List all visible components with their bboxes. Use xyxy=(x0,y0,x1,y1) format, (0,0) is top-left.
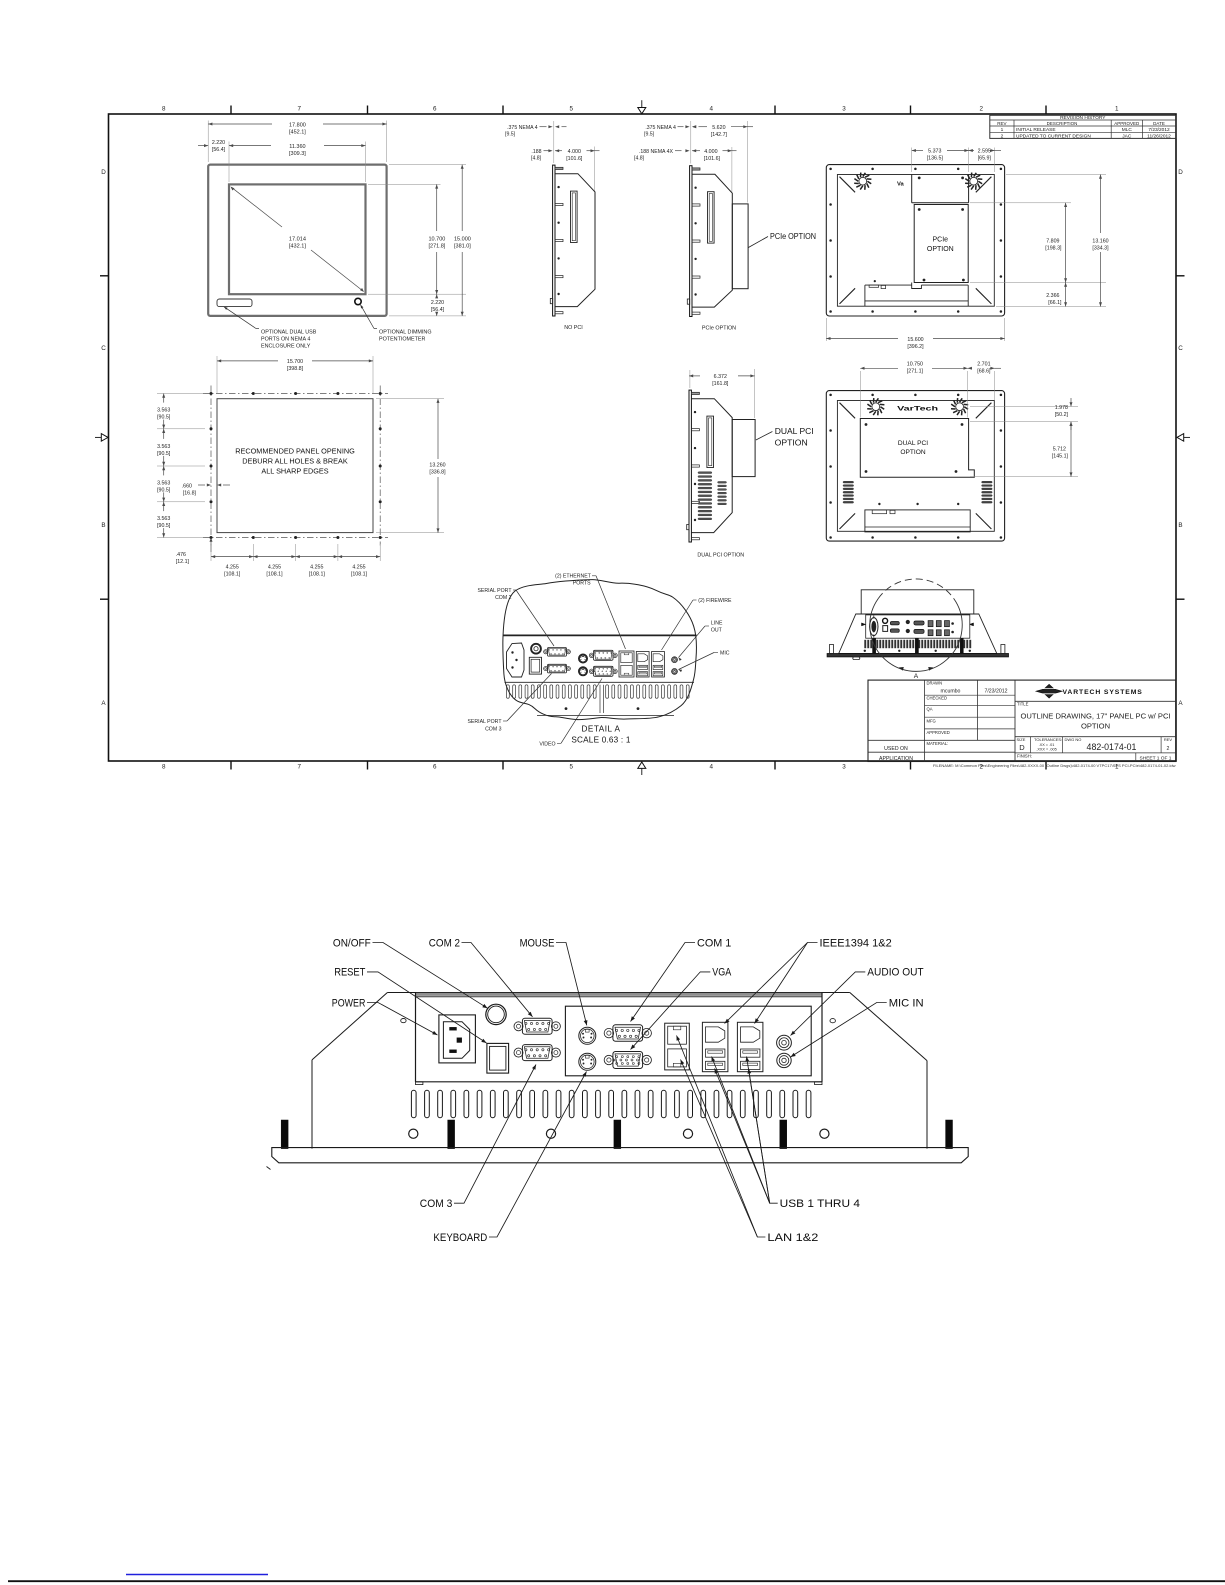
svg-text:PCIe OPTION: PCIe OPTION xyxy=(770,231,816,241)
svg-text:OPTION: OPTION xyxy=(775,437,808,447)
svg-text:POWER: POWER xyxy=(332,997,366,1009)
svg-text:OPTIONAL DUAL USB: OPTIONAL DUAL USB xyxy=(261,329,317,335)
svg-text:5: 5 xyxy=(569,764,573,771)
svg-text:ON/OFF: ON/OFF xyxy=(333,937,371,949)
svg-text:[16.8]: [16.8] xyxy=(183,491,197,497)
svg-text:A: A xyxy=(914,673,919,680)
svg-text:APPROVED: APPROVED xyxy=(927,730,950,735)
svg-text:15.600: 15.600 xyxy=(907,337,923,343)
svg-text:.XX = .01: .XX = .01 xyxy=(1039,743,1055,747)
svg-text:5.620: 5.620 xyxy=(712,125,725,131)
svg-text:[4.8]: [4.8] xyxy=(531,156,542,162)
svg-text:[334.3]: [334.3] xyxy=(1092,245,1109,251)
svg-text:POTENTIOMETER: POTENTIOMETER xyxy=(379,336,426,342)
svg-text:7/23/2012: 7/23/2012 xyxy=(1148,127,1170,133)
svg-text:RESET: RESET xyxy=(334,967,365,979)
svg-text:APPROVED: APPROVED xyxy=(1114,121,1140,126)
svg-text:3: 3 xyxy=(842,106,846,113)
svg-text:COM 3: COM 3 xyxy=(485,726,502,732)
svg-text:4: 4 xyxy=(709,764,713,771)
svg-text:[56.4]: [56.4] xyxy=(431,307,445,313)
svg-text:7/23/2012: 7/23/2012 xyxy=(984,689,1007,695)
svg-text:[90.5]: [90.5] xyxy=(157,415,171,421)
svg-text:PORTS ON NEMA 4: PORTS ON NEMA 4 xyxy=(261,336,310,342)
svg-text:APPLICATION: APPLICATION xyxy=(879,756,913,762)
svg-text:[452.1]: [452.1] xyxy=(289,129,306,135)
svg-text:[396.2]: [396.2] xyxy=(907,344,924,350)
svg-text:2.220: 2.220 xyxy=(431,300,444,306)
svg-text:SERIAL PORT: SERIAL PORT xyxy=(467,719,502,725)
svg-text:2: 2 xyxy=(1167,746,1170,752)
svg-text:(2) FIREWIRE: (2) FIREWIRE xyxy=(698,598,732,604)
svg-text:4.255: 4.255 xyxy=(310,564,323,570)
svg-text:OUT: OUT xyxy=(711,628,723,634)
svg-text:TITLE: TITLE xyxy=(1017,702,1029,707)
svg-text:FINISH:: FINISH: xyxy=(1017,753,1032,758)
svg-text:7: 7 xyxy=(298,764,302,771)
svg-text:SHEET 1 OF 1: SHEET 1 OF 1 xyxy=(1140,756,1172,762)
svg-text:[108.1]: [108.1] xyxy=(266,571,283,577)
svg-text:2.701: 2.701 xyxy=(977,361,990,367)
svg-text:ALL SHARP EDGES: ALL SHARP EDGES xyxy=(261,466,328,475)
svg-text:PCIe: PCIe xyxy=(933,237,949,244)
svg-text:[9.5]: [9.5] xyxy=(644,132,655,138)
svg-text:COM 2: COM 2 xyxy=(495,595,512,601)
svg-text:REV: REV xyxy=(997,121,1006,126)
svg-text:2: 2 xyxy=(1001,134,1004,140)
svg-text:OPTION: OPTION xyxy=(927,246,954,253)
svg-text:10.700: 10.700 xyxy=(428,236,445,242)
svg-text:5.712: 5.712 xyxy=(1053,447,1066,453)
svg-text:MATERIAL:: MATERIAL: xyxy=(927,741,949,746)
svg-text:DETAIL A: DETAIL A xyxy=(581,725,620,734)
svg-text:DATE: DATE xyxy=(1153,121,1165,126)
svg-text:[198.3]: [198.3] xyxy=(1045,245,1062,251)
svg-text:PORTS: PORTS xyxy=(573,580,591,586)
svg-text:MOUSE: MOUSE xyxy=(520,937,555,949)
svg-text:D: D xyxy=(101,169,106,176)
svg-text:REV: REV xyxy=(1164,737,1173,742)
svg-text:[145.1]: [145.1] xyxy=(1052,454,1069,460)
svg-text:(2) ETHERNET: (2) ETHERNET xyxy=(555,574,592,580)
svg-text:SERIAL PORT: SERIAL PORT xyxy=(477,588,512,594)
svg-text:DESCRIPTION: DESCRIPTION xyxy=(1047,121,1078,126)
svg-text:13.260: 13.260 xyxy=(429,462,445,468)
svg-text:AUDIO OUT: AUDIO OUT xyxy=(867,967,923,979)
svg-text:8: 8 xyxy=(162,106,166,113)
svg-text:LAN 1&2: LAN 1&2 xyxy=(767,1232,818,1244)
svg-text:2.366: 2.366 xyxy=(1046,293,1059,299)
svg-text:USB 1 THRU 4: USB 1 THRU 4 xyxy=(780,1198,860,1210)
svg-text:7.809: 7.809 xyxy=(1046,238,1059,244)
svg-text:[50.2]: [50.2] xyxy=(1055,412,1069,418)
svg-text:IEEE1394 1&2: IEEE1394 1&2 xyxy=(820,937,892,949)
svg-text:[136.5]: [136.5] xyxy=(927,156,944,162)
svg-text:[108.1]: [108.1] xyxy=(224,571,241,577)
svg-text:[90.5]: [90.5] xyxy=(157,523,171,529)
svg-text:[161.8]: [161.8] xyxy=(712,381,729,387)
svg-text:DUAL PCI: DUAL PCI xyxy=(898,440,928,447)
svg-text:NO PCI: NO PCI xyxy=(564,325,583,331)
svg-text:5: 5 xyxy=(569,106,573,113)
svg-text:Va: Va xyxy=(897,182,905,188)
svg-text:6.372: 6.372 xyxy=(714,374,727,380)
svg-text:[336.8]: [336.8] xyxy=(429,469,446,475)
svg-text:[68.6]: [68.6] xyxy=(977,368,991,374)
svg-text:1: 1 xyxy=(1115,106,1119,113)
svg-text:2: 2 xyxy=(980,106,984,113)
svg-text:2.595: 2.595 xyxy=(978,149,991,155)
svg-text:DUAL PCI OPTION: DUAL PCI OPTION xyxy=(697,552,744,558)
svg-text:[271.1]: [271.1] xyxy=(907,368,924,374)
svg-text:[108.1]: [108.1] xyxy=(351,571,368,577)
svg-text:[381.0]: [381.0] xyxy=(454,243,471,249)
svg-text:.188 NEMA 4X: .188 NEMA 4X xyxy=(639,149,674,155)
svg-text:C: C xyxy=(1178,345,1183,352)
svg-text:DRAWN: DRAWN xyxy=(927,681,943,686)
svg-text:COM 3: COM 3 xyxy=(420,1198,453,1210)
svg-text:VarTech: VarTech xyxy=(897,406,938,413)
svg-text:4: 4 xyxy=(709,106,713,113)
svg-text:B: B xyxy=(101,522,105,529)
svg-text:VGA: VGA xyxy=(712,967,731,979)
svg-text:10.750: 10.750 xyxy=(907,361,923,367)
svg-text:3.563: 3.563 xyxy=(157,516,170,522)
svg-text:6: 6 xyxy=(433,764,437,771)
svg-text:4.255: 4.255 xyxy=(226,564,239,570)
svg-text:SIZE: SIZE xyxy=(1017,737,1026,742)
svg-text:3: 3 xyxy=(842,764,846,771)
svg-text:VIDEO: VIDEO xyxy=(539,741,555,747)
svg-text:.476: .476 xyxy=(176,552,186,558)
svg-text:[4.8]: [4.8] xyxy=(634,156,645,162)
svg-text:11/26/2012: 11/26/2012 xyxy=(1147,134,1171,140)
svg-text:OUTLINE DRAWING, 17" PANEL PC: OUTLINE DRAWING, 17" PANEL PC w/ PCI xyxy=(1020,712,1170,721)
svg-text:[66.1]: [66.1] xyxy=(1048,300,1062,306)
svg-text:MIC: MIC xyxy=(720,650,730,656)
svg-text:4.255: 4.255 xyxy=(352,564,365,570)
svg-text:USED ON: USED ON xyxy=(884,746,908,752)
svg-text:MFG: MFG xyxy=(927,718,936,723)
svg-text:5.373: 5.373 xyxy=(928,149,941,155)
svg-text:[271.8]: [271.8] xyxy=(428,243,445,249)
svg-text:[65.9]: [65.9] xyxy=(978,156,992,162)
svg-text:.375 NEMA 4: .375 NEMA 4 xyxy=(507,125,538,131)
svg-text:OPTION: OPTION xyxy=(900,449,926,456)
svg-text:UPDATED TO CURRENT DESIGN: UPDATED TO CURRENT DESIGN xyxy=(1016,134,1091,140)
svg-text:[9.5]: [9.5] xyxy=(505,132,516,138)
svg-text:KEYBOARD: KEYBOARD xyxy=(433,1232,487,1244)
svg-text:DUAL PCI: DUAL PCI xyxy=(775,426,814,436)
svg-text:.XXX = .005: .XXX = .005 xyxy=(1036,748,1056,752)
svg-text:PCIe OPTION: PCIe OPTION xyxy=(702,325,736,331)
svg-text:3.563: 3.563 xyxy=(157,444,170,450)
svg-text:[142.7]: [142.7] xyxy=(711,132,728,138)
svg-text:[90.5]: [90.5] xyxy=(157,487,171,493)
svg-text:C: C xyxy=(101,345,106,352)
svg-text:[398.8]: [398.8] xyxy=(287,366,304,372)
svg-text:1.978: 1.978 xyxy=(1055,405,1068,411)
svg-text:DEBURR ALL HOLES & BREAK: DEBURR ALL HOLES & BREAK xyxy=(242,456,348,465)
svg-text:OPTIONAL DIMMING: OPTIONAL DIMMING xyxy=(379,329,432,335)
svg-text:3.563: 3.563 xyxy=(157,408,170,414)
svg-text:17.014: 17.014 xyxy=(289,236,306,242)
svg-text:QA: QA xyxy=(927,707,933,712)
svg-text:4.000: 4.000 xyxy=(568,149,581,155)
svg-text:MLC: MLC xyxy=(1122,127,1133,133)
svg-text:DWG NO: DWG NO xyxy=(1065,737,1082,742)
svg-text:1: 1 xyxy=(1001,127,1004,133)
svg-text:JAC: JAC xyxy=(1122,134,1132,140)
svg-text:MIC IN: MIC IN xyxy=(889,997,924,1009)
svg-text:B: B xyxy=(1178,522,1182,529)
svg-text:13.160: 13.160 xyxy=(1092,238,1108,244)
svg-text:.375 NEMA 4: .375 NEMA 4 xyxy=(645,125,676,131)
svg-text:17.800: 17.800 xyxy=(289,122,306,128)
svg-text:2.220: 2.220 xyxy=(212,140,225,146)
svg-text:[309.3]: [309.3] xyxy=(289,151,306,157)
svg-text:.660: .660 xyxy=(182,484,192,490)
svg-text:CHECKED: CHECKED xyxy=(927,696,947,701)
svg-text:TOLERANCES:: TOLERANCES: xyxy=(1034,737,1062,742)
svg-text:ENCLOSURE ONLY: ENCLOSURE ONLY xyxy=(261,343,311,349)
svg-text:482-0174-01: 482-0174-01 xyxy=(1087,742,1137,752)
svg-text:[101.6]: [101.6] xyxy=(704,156,721,162)
svg-text:INITIAL RELEASE: INITIAL RELEASE xyxy=(1016,127,1056,133)
svg-text:15.700: 15.700 xyxy=(287,359,303,365)
svg-text:D: D xyxy=(1178,169,1183,176)
svg-text:LINE: LINE xyxy=(711,621,723,627)
svg-text:D: D xyxy=(1019,743,1025,752)
svg-text:3.563: 3.563 xyxy=(157,480,170,486)
svg-text:mcumbo: mcumbo xyxy=(941,689,961,695)
svg-text:[56.4]: [56.4] xyxy=(212,147,226,153)
svg-text:COM 1: COM 1 xyxy=(697,937,731,949)
svg-text:FILENAME: M:\Common Files\Engi: FILENAME: M:\Common Files\Engineering Fi… xyxy=(933,763,1176,768)
svg-text:.188: .188 xyxy=(531,149,541,155)
svg-text:4.000: 4.000 xyxy=(704,149,717,155)
svg-text:RECOMMENDED PANEL OPENING: RECOMMENDED PANEL OPENING xyxy=(235,446,355,455)
svg-text:VARTECH SYSTEMS: VARTECH SYSTEMS xyxy=(1063,689,1143,696)
svg-text:[12.1]: [12.1] xyxy=(176,559,190,565)
svg-text:4.255: 4.255 xyxy=(268,564,281,570)
svg-text:[90.5]: [90.5] xyxy=(157,451,171,457)
svg-text:11.360: 11.360 xyxy=(289,144,305,150)
svg-text:7: 7 xyxy=(298,106,302,113)
svg-text:[108.1]: [108.1] xyxy=(309,571,326,577)
svg-text:SCALE 0.63 : 1: SCALE 0.63 : 1 xyxy=(571,735,630,744)
svg-text:6: 6 xyxy=(433,106,437,113)
svg-text:COM 2: COM 2 xyxy=(429,937,460,949)
svg-text:15.000: 15.000 xyxy=(454,236,471,242)
svg-text:[101.6]: [101.6] xyxy=(566,156,583,162)
svg-text:[432.1]: [432.1] xyxy=(289,243,307,249)
svg-text:OPTION: OPTION xyxy=(1081,721,1110,730)
svg-text:8: 8 xyxy=(162,764,166,771)
